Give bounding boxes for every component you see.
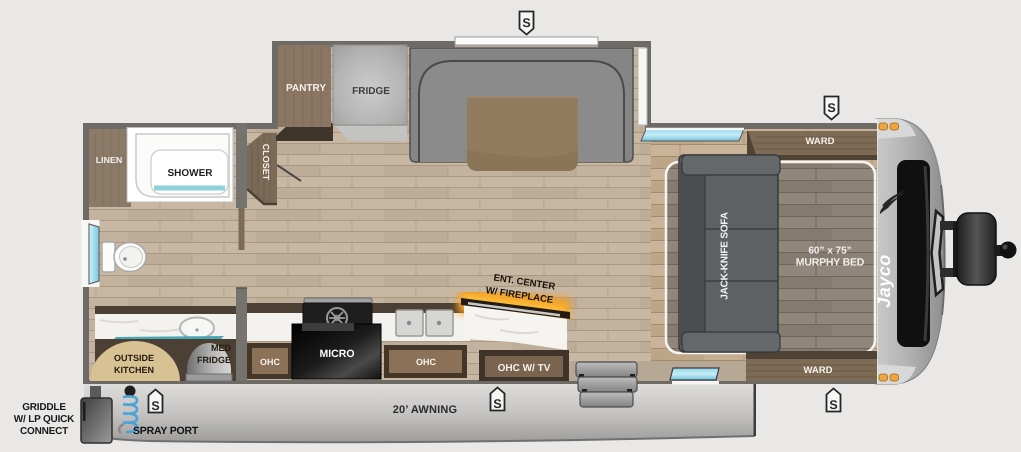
svg-text:S: S	[522, 16, 530, 30]
svg-text:JACK-KNIFE SOFA: JACK-KNIFE SOFA	[720, 212, 731, 300]
svg-text:CONNECT: CONNECT	[20, 426, 68, 437]
svg-text:S: S	[829, 398, 837, 412]
svg-text:OUTSIDE: OUTSIDE	[114, 353, 154, 363]
svg-text:KITCHEN: KITCHEN	[114, 365, 154, 375]
svg-text:MICRO: MICRO	[320, 348, 355, 360]
svg-text:OHC W/ TV: OHC W/ TV	[498, 363, 551, 374]
svg-text:FRIDGE: FRIDGE	[197, 355, 231, 365]
svg-text:SPRAY PORT: SPRAY PORT	[133, 425, 199, 437]
svg-text:MED: MED	[211, 343, 232, 353]
svg-text:OHC: OHC	[416, 357, 437, 367]
svg-text:WARD: WARD	[805, 136, 834, 147]
svg-text:S: S	[827, 101, 835, 115]
svg-text:SHOWER: SHOWER	[168, 168, 214, 179]
svg-text:OHC: OHC	[260, 357, 281, 367]
svg-text:PANTRY: PANTRY	[286, 83, 326, 94]
svg-text:CLOSET: CLOSET	[261, 144, 271, 181]
svg-text:WARD: WARD	[803, 365, 832, 376]
svg-text:60” x 75”: 60” x 75”	[808, 246, 851, 257]
svg-text:W/ LP QUICK: W/ LP QUICK	[14, 414, 75, 425]
svg-text:FRIDGE: FRIDGE	[352, 86, 390, 97]
svg-text:MURPHY BED: MURPHY BED	[796, 257, 865, 269]
svg-text:LINEN: LINEN	[96, 155, 122, 165]
svg-text:GRIDDLE: GRIDDLE	[22, 402, 66, 413]
svg-text:20’ AWNING: 20’ AWNING	[393, 404, 458, 416]
svg-text:S: S	[151, 399, 159, 413]
svg-text:S: S	[493, 397, 501, 411]
